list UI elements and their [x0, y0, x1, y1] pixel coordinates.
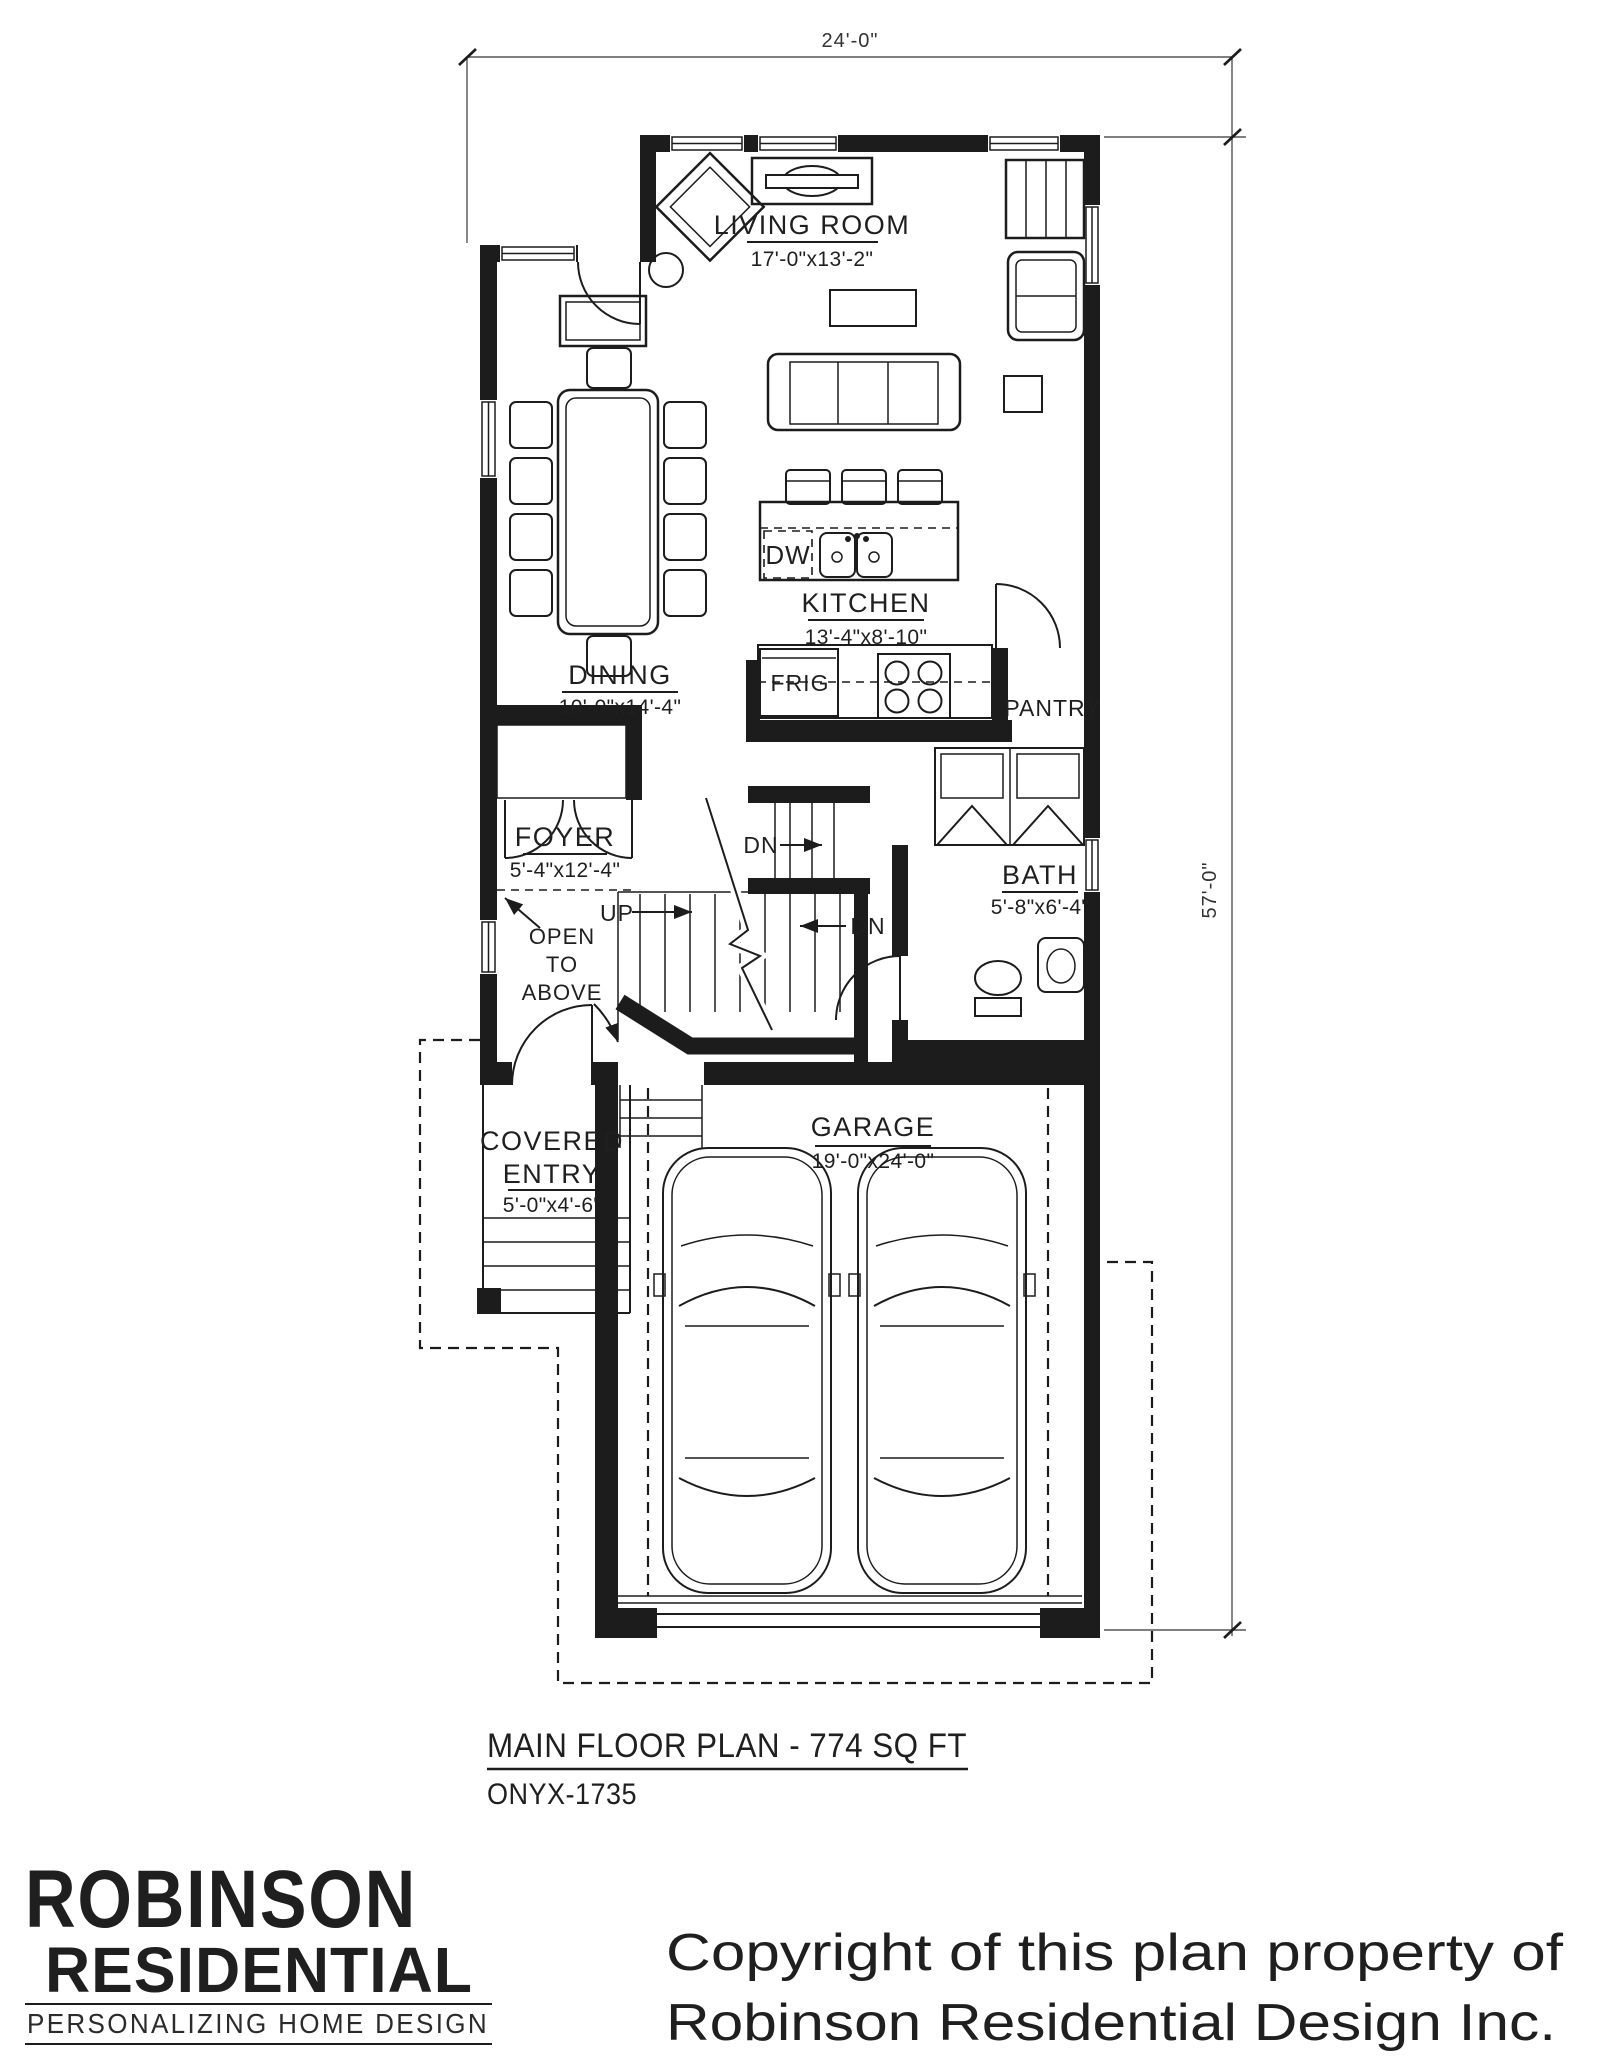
kitchen-label: KITCHEN: [801, 588, 930, 618]
loveseat: [1008, 252, 1084, 340]
open-above-line2: TO: [546, 952, 578, 977]
copyright-line1: Copyright of this plan property of: [666, 1924, 1564, 1982]
open-above-line1: OPEN: [529, 924, 595, 949]
title-block: MAIN FLOOR PLAN - 774 SQ FT ONYX-1735: [487, 1727, 968, 1811]
fridge-label: FRIG: [771, 670, 830, 696]
foyer-label: FOYER: [515, 822, 616, 852]
pantry-label: PANTRY: [1004, 695, 1101, 721]
side-table: [1004, 376, 1042, 412]
bathroom-fixtures: [975, 938, 1084, 1016]
dining-furniture: [510, 296, 706, 676]
window-icon: [1084, 205, 1100, 285]
bifold-door-icon: [1013, 806, 1083, 845]
coffee-table: [830, 290, 916, 326]
car-left: [654, 1148, 840, 1593]
side-door-icon: [578, 262, 640, 324]
dining-label: DINING: [568, 660, 672, 690]
covered-entry-label-line1: COVERED: [480, 1126, 624, 1156]
copyright-notice: Copyright of this plan property of Robin…: [666, 1924, 1564, 2052]
open-above-leader: [594, 1004, 618, 1042]
logo-line1: ROBINSON: [25, 1854, 417, 1945]
window-icon: [758, 135, 838, 152]
window-icon: [988, 135, 1060, 152]
dining-table: [558, 390, 658, 634]
dn-upper-label: DN: [743, 832, 778, 858]
floor-plan: 24'-0" 57'-0": [0, 0, 1600, 2071]
covered-entry-label-line2: ENTRY: [503, 1159, 602, 1189]
window-icon: [1084, 838, 1100, 892]
covered-entry-size: 5'-0"x4'-6": [503, 1194, 602, 1217]
buffet: [560, 296, 646, 346]
window-icon: [500, 245, 576, 262]
height-dimension-label: 57'-0": [1199, 862, 1221, 919]
up-label: UP: [600, 900, 634, 926]
bath-label: BATH: [1002, 860, 1078, 890]
living-room-furniture: [649, 153, 1084, 430]
plan-code: ONYX-1735: [487, 1778, 637, 1811]
window-icon: [480, 400, 497, 478]
round-side-table: [649, 253, 683, 287]
dishwasher-label: DW: [765, 540, 810, 570]
kitchen-size: 13'-4"x8'-10": [805, 626, 928, 649]
bath-sink-icon: [1038, 938, 1084, 992]
living-room-size: 17'-0"x13'-2": [751, 248, 874, 271]
living-room-label: LIVING ROOM: [714, 210, 911, 240]
plan-title: MAIN FLOOR PLAN - 774 SQ FT: [487, 1727, 967, 1765]
copyright-line2: Robinson Residential Design Inc.: [666, 1994, 1556, 2052]
dining-size: 10'-0"x14'-4": [559, 696, 682, 719]
bookcase: [1006, 160, 1084, 238]
pantry-door-icon: [996, 584, 1060, 648]
dn-lower-label: DN: [850, 913, 885, 939]
foyer-closet-box: [497, 725, 626, 798]
window-icon: [670, 135, 744, 152]
bifold-door-icon: [937, 806, 1007, 845]
double-sink-icon: [820, 533, 892, 577]
bar-stools: [786, 470, 942, 504]
open-above-line3: ABOVE: [522, 980, 603, 1005]
hall-closet: [935, 748, 1084, 845]
accent-chair: [656, 153, 763, 260]
garage-door-icon: [618, 1596, 1082, 1627]
garage-label: GARAGE: [811, 1112, 936, 1142]
logo-tagline: PERSONALIZING HOME DESIGN: [27, 2008, 489, 2039]
toilet-icon: [975, 961, 1021, 1016]
width-dimension-label: 24'-0": [822, 30, 879, 52]
garage-entry-steps: [620, 1085, 702, 1148]
dining-chairs: [510, 348, 706, 676]
brand-logo: ROBINSON RESIDENTIAL PERSONALIZING HOME …: [25, 1854, 492, 2044]
fireplace-console: [752, 158, 872, 204]
foyer-size: 5'-4"x12'-4": [510, 859, 621, 882]
logo-line2: RESIDENTIAL: [45, 1934, 473, 2006]
sofa: [768, 354, 960, 430]
car-right: [849, 1148, 1035, 1593]
window-icon: [480, 920, 497, 974]
bath-size: 5'-8"x6'-4": [991, 896, 1090, 919]
garage-size: 19'-0"x24'-0": [812, 1150, 935, 1173]
stove-icon: [878, 654, 950, 718]
